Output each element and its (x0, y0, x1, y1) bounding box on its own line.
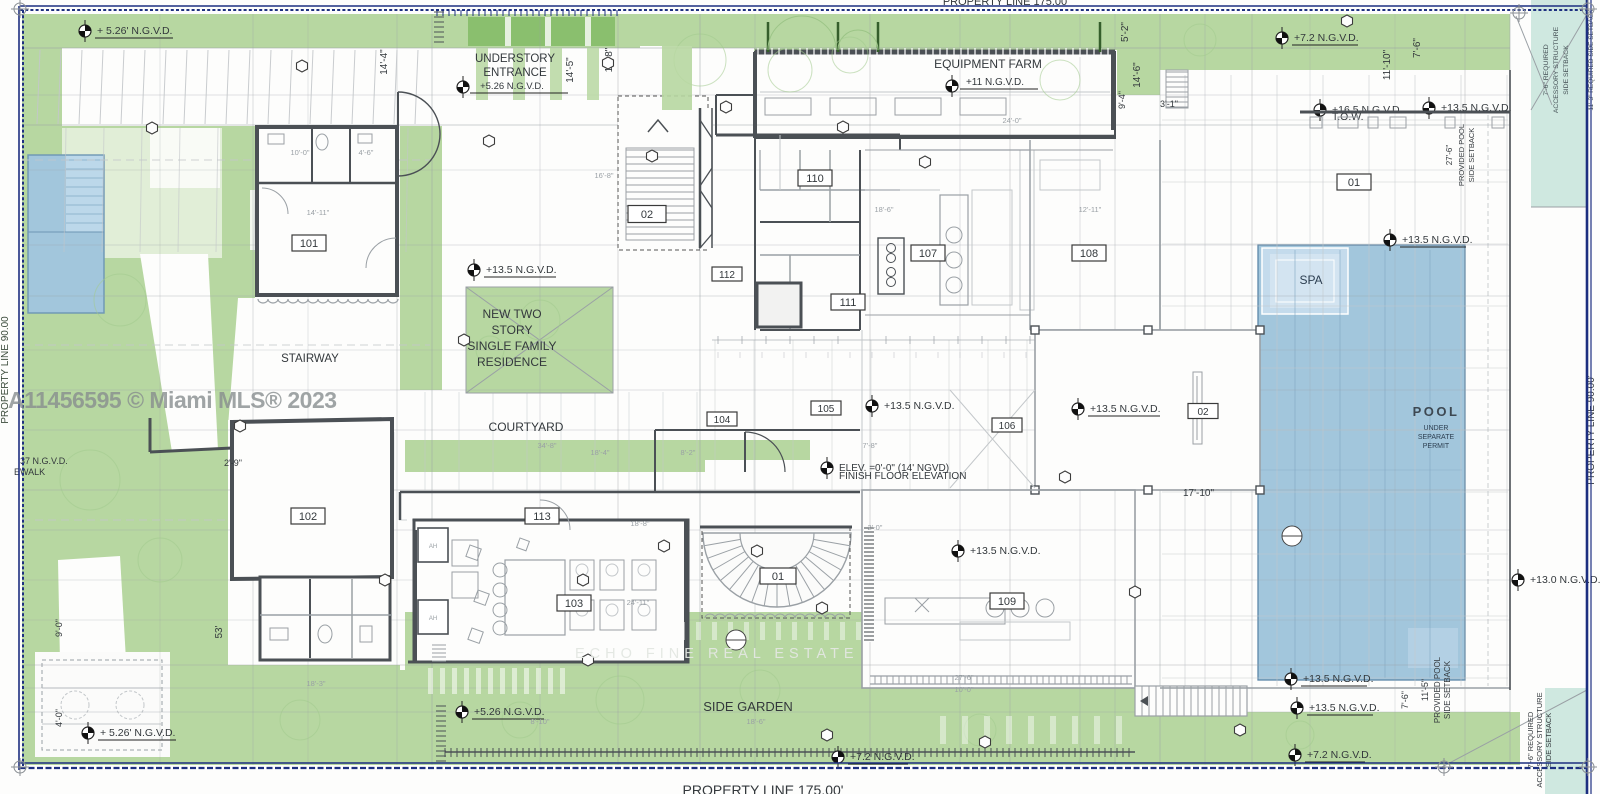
svg-text:11'-10": 11'-10" (1382, 49, 1393, 80)
svg-text:7'-6" REQUIRED: 7'-6" REQUIRED (1543, 44, 1550, 95)
svg-text:27'-6": 27'-6" (954, 673, 973, 682)
svg-text:ECHO FINE REAL ESTATE: ECHO FINE REAL ESTATE (575, 646, 859, 662)
svg-text:UNDER: UNDER (1424, 425, 1449, 432)
svg-text:4'-6": 4'-6" (359, 148, 374, 157)
svg-text:7'-6": 7'-6" (1400, 691, 1410, 709)
svg-text:SIDE SETBACK: SIDE SETBACK (1443, 660, 1452, 719)
svg-text:24'-11": 24'-11" (627, 598, 650, 607)
svg-text:02: 02 (641, 209, 653, 221)
svg-text:10'-0": 10'-0" (290, 148, 309, 157)
svg-text:UNDERSTORY: UNDERSTORY (475, 53, 555, 65)
svg-text:PROPERTY LINE 175.00: PROPERTY LINE 175.00 (943, 0, 1067, 8)
svg-text:110: 110 (806, 173, 824, 185)
svg-text:18'-6": 18'-6" (874, 205, 893, 214)
svg-text:+ 5.26' N.G.V.D.: + 5.26' N.G.V.D. (97, 25, 172, 37)
svg-text:AH: AH (429, 544, 437, 550)
svg-text:9'-0": 9'-0" (54, 619, 64, 637)
svg-text:COURTYARD: COURTYARD (489, 420, 564, 434)
svg-text:PROVIDED POOL: PROVIDED POOL (1457, 124, 1466, 186)
svg-text:+13.5 N.G.V.D.: +13.5 N.G.V.D. (970, 545, 1041, 557)
svg-text:PROPERTY LINE 175.00': PROPERTY LINE 175.00' (683, 782, 844, 794)
svg-text:106: 106 (999, 421, 1016, 432)
svg-text:SIDE SETBACK: SIDE SETBACK (1467, 128, 1476, 183)
svg-text:27'-6": 27'-6" (1445, 145, 1454, 166)
svg-text:NEW TWO: NEW TWO (482, 307, 541, 321)
svg-text:11'-5": 11'-5" (1420, 679, 1430, 701)
svg-text:113: 113 (533, 511, 551, 523)
svg-text:107: 107 (919, 248, 937, 260)
svg-text:17'-10": 17'-10" (1183, 488, 1214, 499)
svg-text:103: 103 (565, 598, 583, 610)
svg-text:STORY: STORY (492, 323, 533, 337)
svg-text:STAIRWAY: STAIRWAY (281, 353, 339, 365)
svg-text:3'-1": 3'-1" (1160, 99, 1178, 109)
svg-text:+7.2 N.G.V.D.: +7.2 N.G.V.D. (1307, 749, 1372, 761)
svg-text:POOL: POOL (1413, 404, 1460, 419)
svg-text:+13.5 N.G.V.D.: +13.5 N.G.V.D. (884, 400, 955, 412)
svg-text:SEPARATE: SEPARATE (1418, 434, 1455, 441)
svg-text:EQUIPMENT FARM: EQUIPMENT FARM (934, 57, 1042, 71)
svg-text:SIDE GARDEN: SIDE GARDEN (703, 699, 793, 714)
svg-text:+ 5.26' N.G.V.D.: + 5.26' N.G.V.D. (100, 727, 175, 739)
svg-text:37 N.G.V.D.: 37 N.G.V.D. (20, 456, 68, 466)
svg-text:8'-10": 8'-10" (530, 717, 549, 726)
svg-text:34'-8": 34'-8" (537, 441, 556, 450)
svg-text:102: 102 (299, 511, 317, 523)
svg-text:FINISH FLOOR ELEVATION: FINISH FLOOR ELEVATION (839, 471, 966, 482)
svg-text:7'-8": 7'-8" (863, 441, 878, 450)
svg-text:14'-4": 14'-4" (379, 49, 390, 75)
svg-text:01: 01 (772, 571, 784, 583)
svg-text:16'-8": 16'-8" (594, 171, 613, 180)
svg-text:18'-3": 18'-3" (306, 679, 325, 688)
svg-text:7'-6": 7'-6" (1412, 38, 1423, 58)
svg-text:109: 109 (998, 596, 1016, 608)
svg-text:8'-2": 8'-2" (681, 448, 696, 457)
svg-text:SIDE SETBACK: SIDE SETBACK (1563, 45, 1570, 95)
svg-text:SPA: SPA (1299, 273, 1322, 287)
svg-text:101: 101 (300, 238, 318, 250)
svg-text:18'-4": 18'-4" (590, 448, 609, 457)
svg-text:A11456595 © Miami MLS® 2023: A11456595 © Miami MLS® 2023 (8, 387, 337, 413)
svg-text:112: 112 (719, 270, 735, 281)
svg-text:+13.0 N.G.V.D.: +13.0 N.G.V.D. (1530, 574, 1600, 586)
svg-text:ACCESSORY STRUCTURE: ACCESSORY STRUCTURE (1553, 26, 1560, 113)
svg-text:PERMIT: PERMIT (1423, 443, 1450, 450)
svg-text:14'-5": 14'-5" (565, 57, 576, 83)
svg-text:+13.5 N.G.V.D.: +13.5 N.G.V.D. (1090, 403, 1161, 415)
svg-text:AH: AH (429, 616, 437, 622)
svg-text:+13.5 N.G.V.D.: +13.5 N.G.V.D. (1309, 702, 1380, 714)
svg-text:7'-6" REQUIRED: 7'-6" REQUIRED (1526, 711, 1535, 768)
svg-text:+13.5 N.G.V.D.: +13.5 N.G.V.D. (486, 264, 557, 276)
svg-text:+13.5 N.G.V.D.: +13.5 N.G.V.D. (1402, 234, 1473, 246)
svg-text:24'-0": 24'-0" (1002, 116, 1021, 125)
svg-text:SIDE SETBACK: SIDE SETBACK (1544, 713, 1553, 768)
svg-text:01: 01 (1348, 177, 1360, 189)
svg-text:02: 02 (1197, 407, 1209, 418)
svg-text:ACCESSORY STRUCTURE: ACCESSORY STRUCTURE (1535, 692, 1544, 787)
svg-text:+7.2 N.G.V.D.: +7.2 N.G.V.D. (850, 751, 915, 763)
svg-text:+13.5 N.G.V.D.: +13.5 N.G.V.D. (1303, 673, 1374, 685)
svg-text:10'-0": 10'-0" (954, 685, 973, 694)
svg-text:PROVIDED POOL: PROVIDED POOL (1433, 656, 1442, 723)
svg-text:2'-0": 2'-0" (868, 523, 883, 532)
svg-text:5'-2": 5'-2" (1120, 22, 1131, 42)
svg-text:14'-11": 14'-11" (307, 208, 330, 217)
svg-text:RESIDENCE: RESIDENCE (477, 355, 547, 369)
svg-text:105: 105 (818, 404, 835, 415)
svg-text:18'-8": 18'-8" (630, 519, 649, 528)
svg-text:+5.26 N.G.V.D.: +5.26 N.G.V.D. (480, 81, 544, 92)
svg-text:18'-6": 18'-6" (746, 717, 765, 726)
svg-text:2'-9": 2'-9" (224, 458, 242, 468)
svg-text:SINGLE FAMILY: SINGLE FAMILY (467, 339, 556, 353)
svg-text:ENTRANCE: ENTRANCE (483, 67, 547, 79)
svg-text:53': 53' (214, 625, 225, 638)
svg-text:108: 108 (1080, 248, 1098, 260)
svg-text:+11 N.G.V.D.: +11 N.G.V.D. (966, 77, 1024, 88)
svg-text:9'-4": 9'-4" (1117, 91, 1127, 109)
svg-text:4'-0": 4'-0" (54, 709, 64, 727)
svg-text:+7.2 N.G.V.D.: +7.2 N.G.V.D. (1294, 32, 1359, 44)
svg-text:12'-11": 12'-11" (1079, 205, 1102, 214)
svg-text:111: 111 (840, 297, 857, 309)
svg-text:14'-6": 14'-6" (1132, 62, 1143, 88)
svg-text:104: 104 (714, 415, 731, 426)
